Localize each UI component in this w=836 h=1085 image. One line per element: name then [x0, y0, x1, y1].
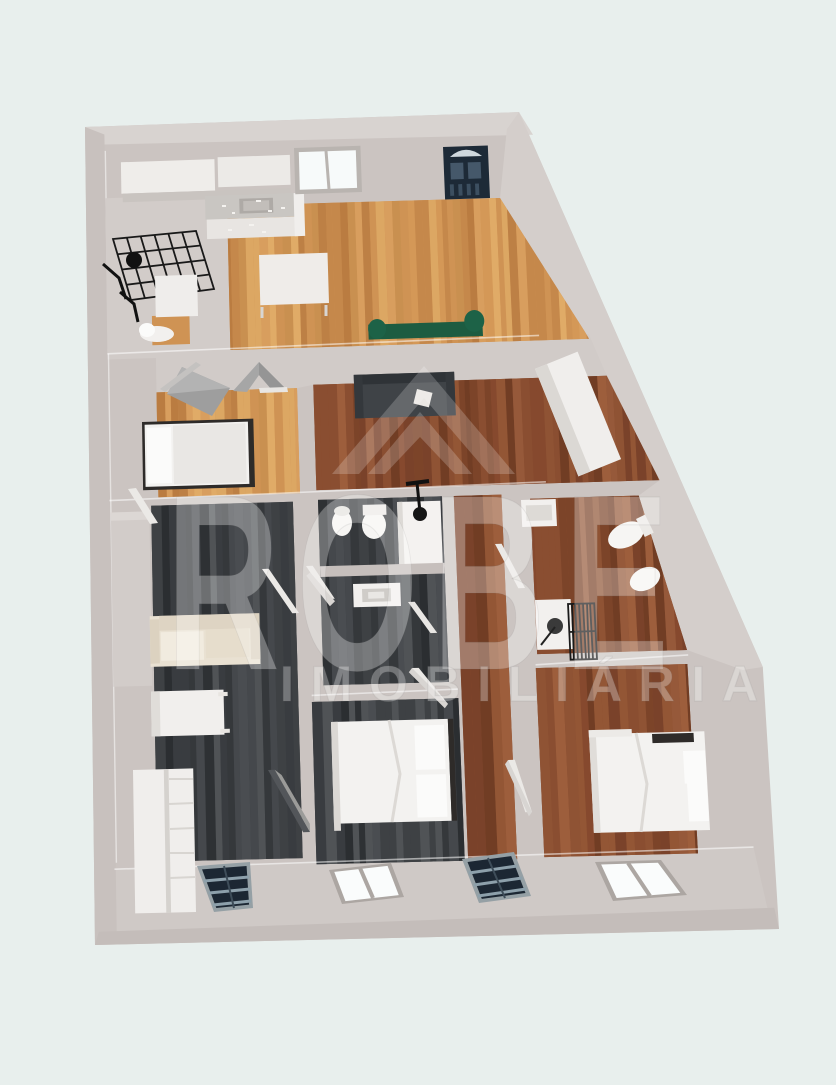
svg-text:R: R: [166, 444, 280, 723]
